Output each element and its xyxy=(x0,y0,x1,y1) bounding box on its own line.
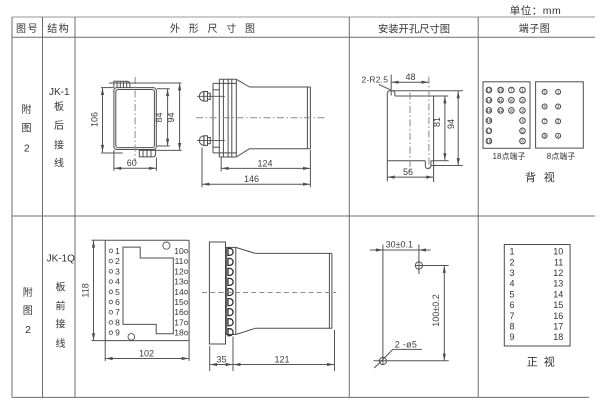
svg-text:线: 线 xyxy=(54,156,64,169)
svg-text:外 形 尺 寸 图: 外 形 尺 寸 图 xyxy=(170,22,258,35)
svg-text:146: 146 xyxy=(244,174,259,184)
svg-text:结构: 结构 xyxy=(47,22,70,35)
svg-text:18点端子: 18点端子 xyxy=(493,151,526,161)
svg-text:2: 2 xyxy=(25,324,31,336)
svg-text:60: 60 xyxy=(127,158,137,168)
svg-text:3: 3 xyxy=(510,268,515,278)
svg-text:附: 附 xyxy=(23,286,33,299)
svg-text:8: 8 xyxy=(510,322,515,332)
svg-text:11: 11 xyxy=(175,256,184,266)
svg-text:7: 7 xyxy=(510,311,515,321)
svg-text:12: 12 xyxy=(553,268,563,278)
svg-text:4: 4 xyxy=(115,277,120,287)
svg-text:前: 前 xyxy=(56,300,66,313)
svg-text:单位：mm: 单位：mm xyxy=(510,4,562,17)
svg-text:9: 9 xyxy=(115,328,120,338)
svg-text:JK-1Q: JK-1Q xyxy=(47,254,76,265)
svg-text:1: 1 xyxy=(521,88,524,93)
svg-text:13: 13 xyxy=(486,88,492,93)
svg-text:线: 线 xyxy=(56,337,66,350)
svg-text:106: 106 xyxy=(89,112,99,127)
svg-text:14: 14 xyxy=(553,289,563,299)
svg-text:接: 接 xyxy=(54,138,64,151)
svg-text:10: 10 xyxy=(174,246,184,256)
svg-text:11: 11 xyxy=(554,257,563,267)
svg-text:安装开孔尺寸图: 安装开孔尺寸图 xyxy=(378,23,450,36)
svg-text:正: 正 xyxy=(527,357,538,369)
svg-text:15: 15 xyxy=(553,300,563,310)
svg-text:16: 16 xyxy=(486,118,492,123)
svg-text:124: 124 xyxy=(257,158,272,168)
svg-text:121: 121 xyxy=(274,354,289,364)
svg-text:2: 2 xyxy=(521,98,524,103)
svg-text:18: 18 xyxy=(486,139,492,144)
svg-text:6: 6 xyxy=(510,300,515,310)
svg-text:13: 13 xyxy=(553,279,563,289)
svg-text:2 -ø5: 2 -ø5 xyxy=(395,339,418,349)
svg-text:16: 16 xyxy=(174,307,184,317)
svg-text:板: 板 xyxy=(56,281,66,294)
svg-text:94: 94 xyxy=(166,112,176,122)
svg-text:图: 图 xyxy=(22,123,32,135)
svg-text:1: 1 xyxy=(115,246,120,256)
svg-text:6: 6 xyxy=(115,297,120,307)
svg-text:11: 11 xyxy=(498,98,503,103)
svg-text:3: 3 xyxy=(115,266,120,276)
svg-text:4: 4 xyxy=(521,118,524,123)
svg-text:8点端子: 8点端子 xyxy=(547,151,575,161)
svg-text:15: 15 xyxy=(486,108,492,113)
svg-text:2-R2.5: 2-R2.5 xyxy=(361,74,388,84)
svg-text:8: 8 xyxy=(510,98,513,103)
svg-text:图: 图 xyxy=(23,305,33,317)
svg-text:板: 板 xyxy=(54,100,64,113)
svg-text:118: 118 xyxy=(80,283,90,297)
svg-text:8: 8 xyxy=(115,317,120,327)
svg-text:9: 9 xyxy=(510,108,513,113)
svg-text:7: 7 xyxy=(510,88,513,93)
svg-text:5: 5 xyxy=(115,287,120,297)
svg-text:14: 14 xyxy=(486,98,492,103)
svg-text:12: 12 xyxy=(498,108,504,113)
svg-text:2: 2 xyxy=(115,256,120,266)
svg-text:4: 4 xyxy=(510,279,515,289)
svg-text:后: 后 xyxy=(54,120,64,132)
svg-text:14: 14 xyxy=(174,287,184,297)
svg-text:84: 84 xyxy=(154,112,164,122)
svg-text:视: 视 xyxy=(544,355,555,369)
svg-text:102: 102 xyxy=(139,348,154,358)
svg-text:15: 15 xyxy=(174,297,184,307)
svg-text:背: 背 xyxy=(525,170,536,184)
svg-text:视: 视 xyxy=(544,170,555,184)
svg-text:JK-1: JK-1 xyxy=(49,87,70,98)
svg-text:35: 35 xyxy=(216,354,226,364)
svg-text:16: 16 xyxy=(553,311,563,321)
svg-text:1: 1 xyxy=(510,247,515,257)
svg-text:6: 6 xyxy=(521,139,524,144)
svg-text:附: 附 xyxy=(22,103,32,116)
svg-text:3: 3 xyxy=(521,108,524,113)
svg-text:100±0.2: 100±0.2 xyxy=(431,294,441,326)
svg-text:5: 5 xyxy=(521,128,524,133)
svg-text:17: 17 xyxy=(486,128,492,133)
svg-text:56: 56 xyxy=(403,167,413,177)
svg-text:81: 81 xyxy=(432,117,442,127)
svg-text:9: 9 xyxy=(510,332,515,342)
svg-text:13: 13 xyxy=(174,277,184,287)
svg-text:17: 17 xyxy=(553,322,563,332)
svg-text:5: 5 xyxy=(510,289,515,299)
svg-text:端子图: 端子图 xyxy=(519,22,551,35)
svg-text:接: 接 xyxy=(56,318,66,331)
svg-text:30±0.1: 30±0.1 xyxy=(386,240,413,250)
svg-text:图号: 图号 xyxy=(16,23,39,35)
svg-text:10: 10 xyxy=(498,88,504,93)
svg-text:18: 18 xyxy=(174,328,184,338)
svg-text:7: 7 xyxy=(115,307,120,317)
svg-text:17: 17 xyxy=(174,317,184,327)
svg-text:2: 2 xyxy=(24,142,30,154)
svg-text:94: 94 xyxy=(446,119,456,129)
svg-text:12: 12 xyxy=(174,266,184,276)
svg-text:10: 10 xyxy=(553,247,563,257)
svg-text:2: 2 xyxy=(510,257,515,267)
svg-text:48: 48 xyxy=(405,72,415,82)
svg-text:18: 18 xyxy=(553,332,563,342)
